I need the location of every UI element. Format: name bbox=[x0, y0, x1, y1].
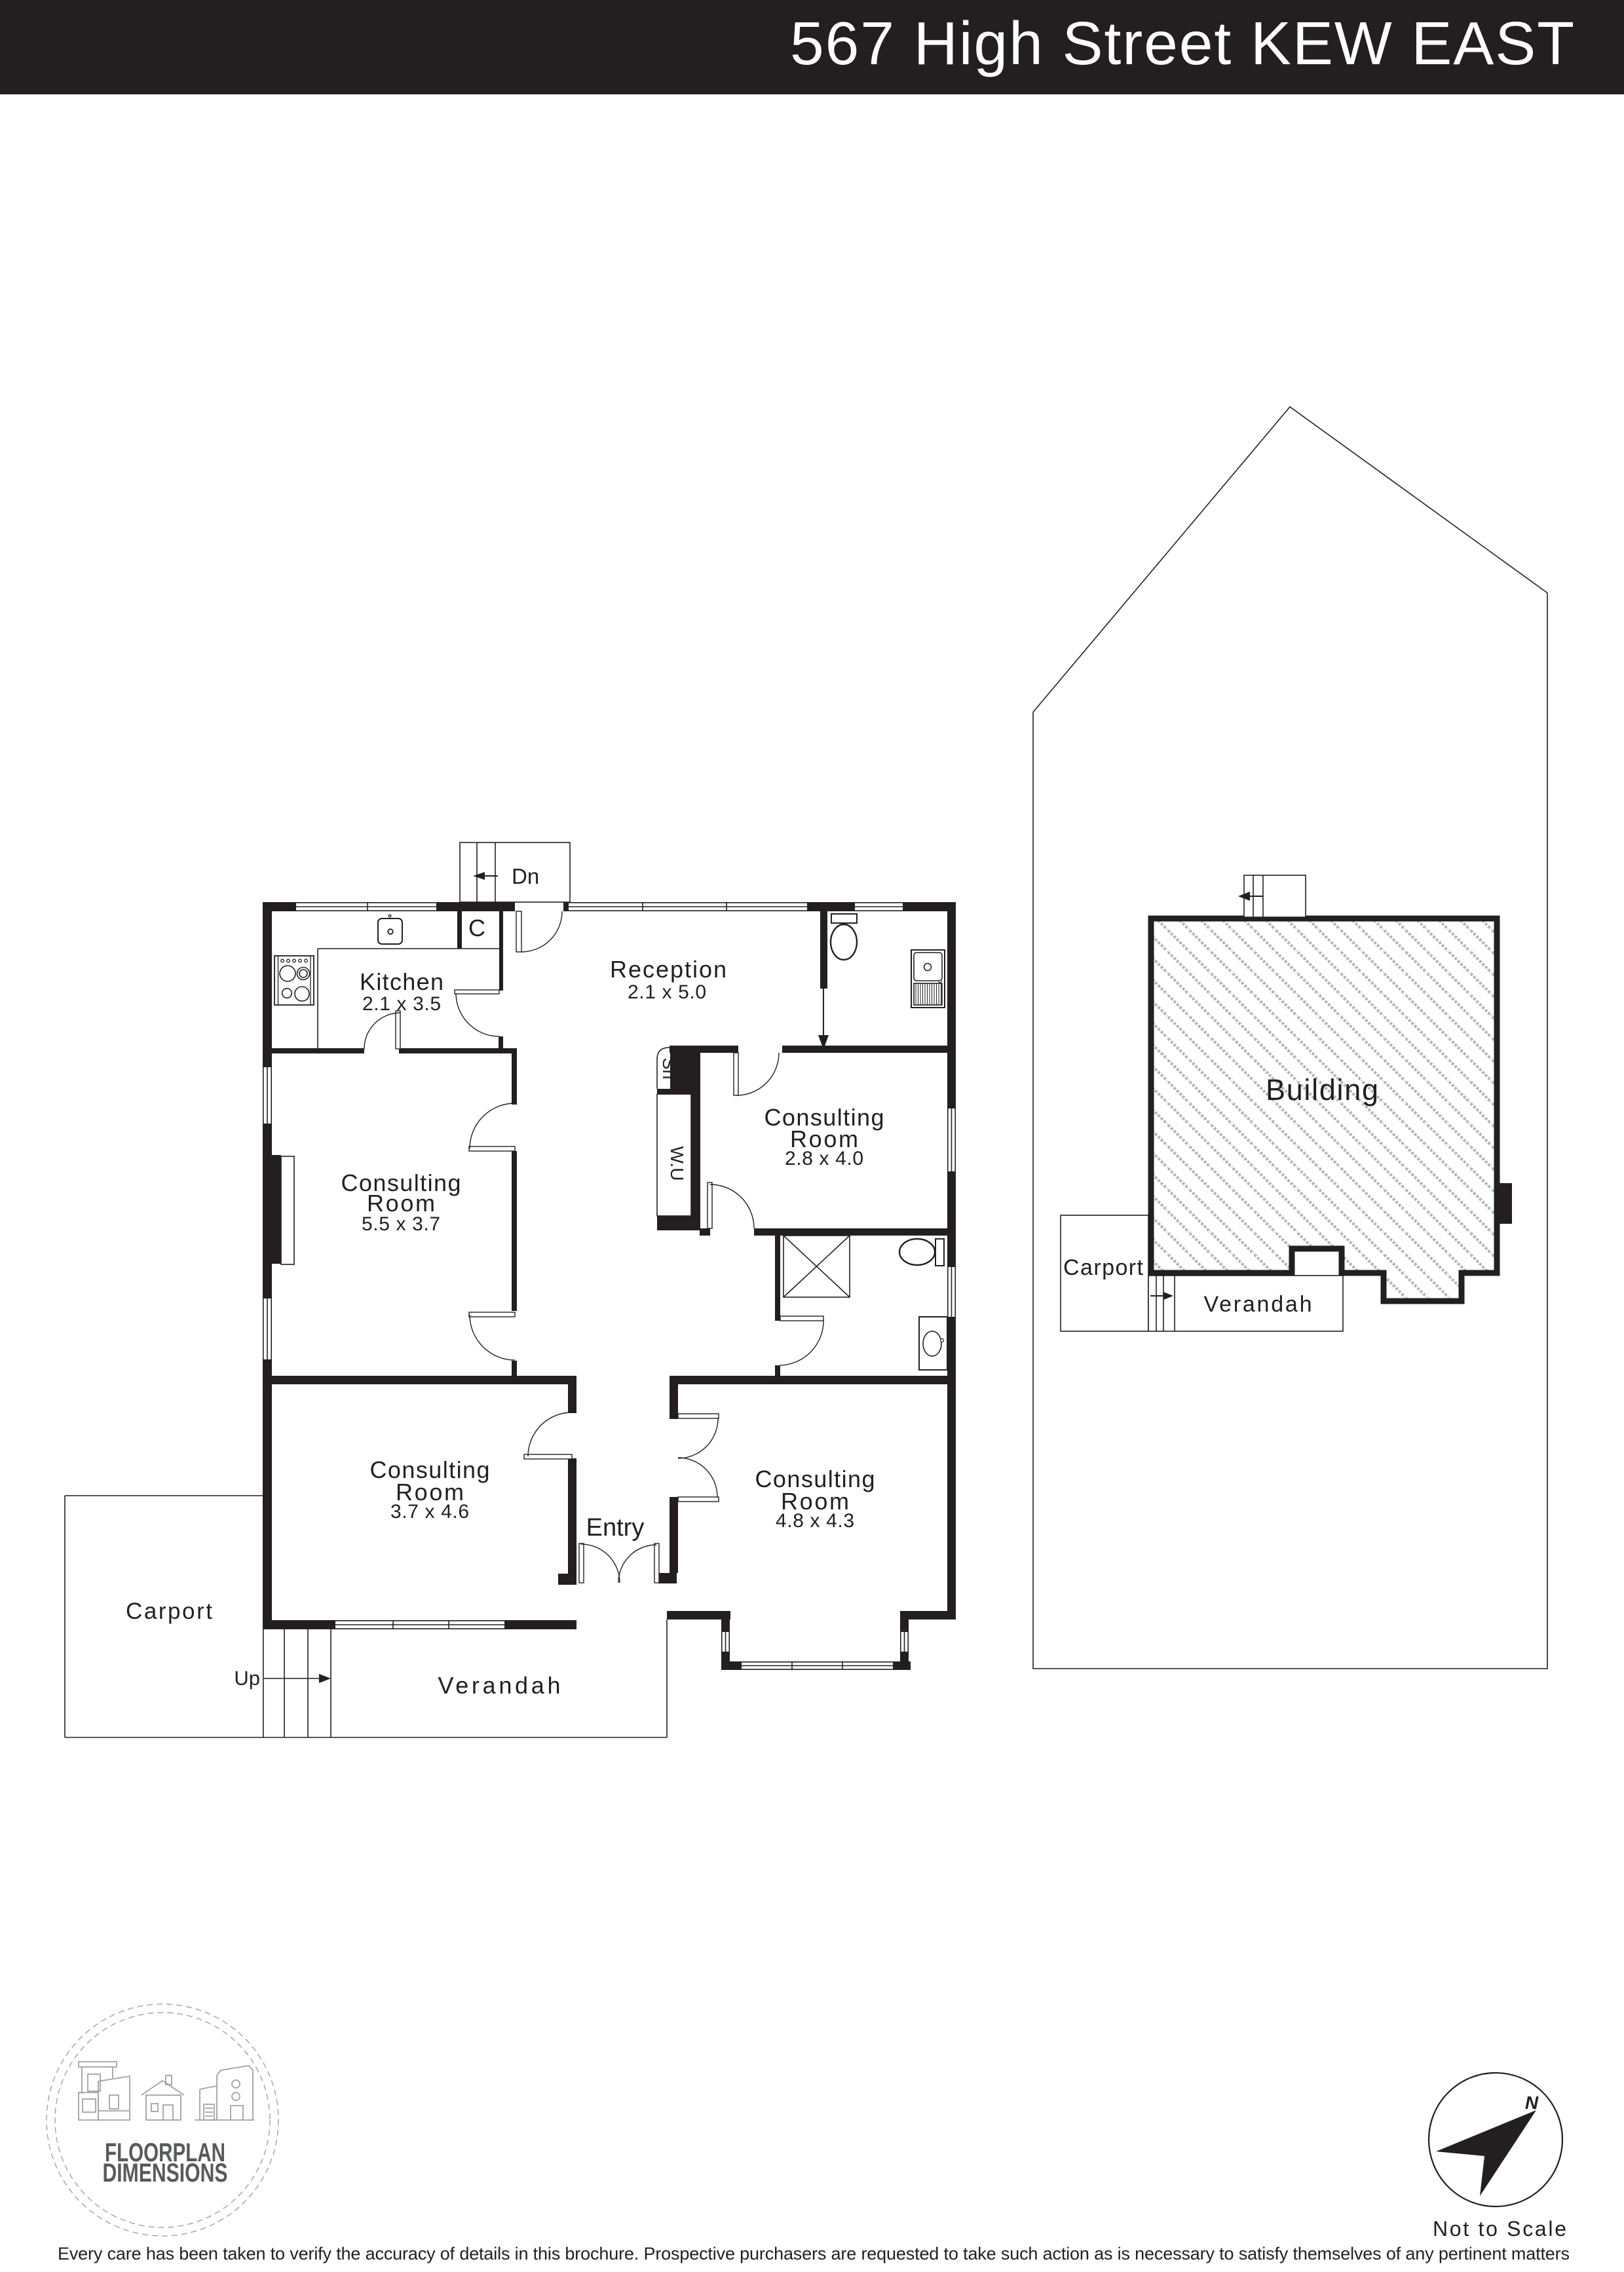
svg-text:Room: Room bbox=[367, 1190, 435, 1217]
svg-text:Sh: Sh bbox=[659, 1057, 679, 1079]
svg-text:567 High Street KEW EAST: 567 High Street KEW EAST bbox=[790, 9, 1574, 77]
svg-text:5.5 x 3.7: 5.5 x 3.7 bbox=[362, 1213, 440, 1235]
svg-text:3.7 x 4.6: 3.7 x 4.6 bbox=[390, 1501, 469, 1523]
svg-text:N: N bbox=[1525, 2092, 1539, 2113]
svg-text:W.U: W.U bbox=[667, 1146, 687, 1181]
svg-text:DIMENSIONS: DIMENSIONS bbox=[103, 2159, 228, 2187]
svg-text:2.1 x 5.0: 2.1 x 5.0 bbox=[628, 981, 706, 1003]
svg-text:Carport: Carport bbox=[1063, 1255, 1144, 1280]
svg-text:Verandah: Verandah bbox=[438, 1672, 561, 1699]
svg-text:C: C bbox=[468, 915, 485, 941]
svg-text:4.8 x 4.3: 4.8 x 4.3 bbox=[776, 1510, 854, 1532]
svg-text:Verandah: Verandah bbox=[1204, 1292, 1312, 1317]
svg-text:Building: Building bbox=[1266, 1073, 1378, 1107]
svg-text:2.8 x 4.0: 2.8 x 4.0 bbox=[785, 1148, 863, 1169]
svg-text:Up: Up bbox=[234, 1667, 260, 1690]
svg-text:Entry: Entry bbox=[586, 1514, 645, 1542]
svg-text:Dn: Dn bbox=[512, 864, 539, 888]
svg-text:Carport: Carport bbox=[126, 1599, 212, 1624]
svg-text:Not to Scale: Not to Scale bbox=[1433, 2217, 1566, 2241]
svg-text:2.1 x 3.5: 2.1 x 3.5 bbox=[362, 993, 441, 1015]
svg-text:Every care has been taken to v: Every care has been taken to verify the … bbox=[58, 2244, 1570, 2263]
